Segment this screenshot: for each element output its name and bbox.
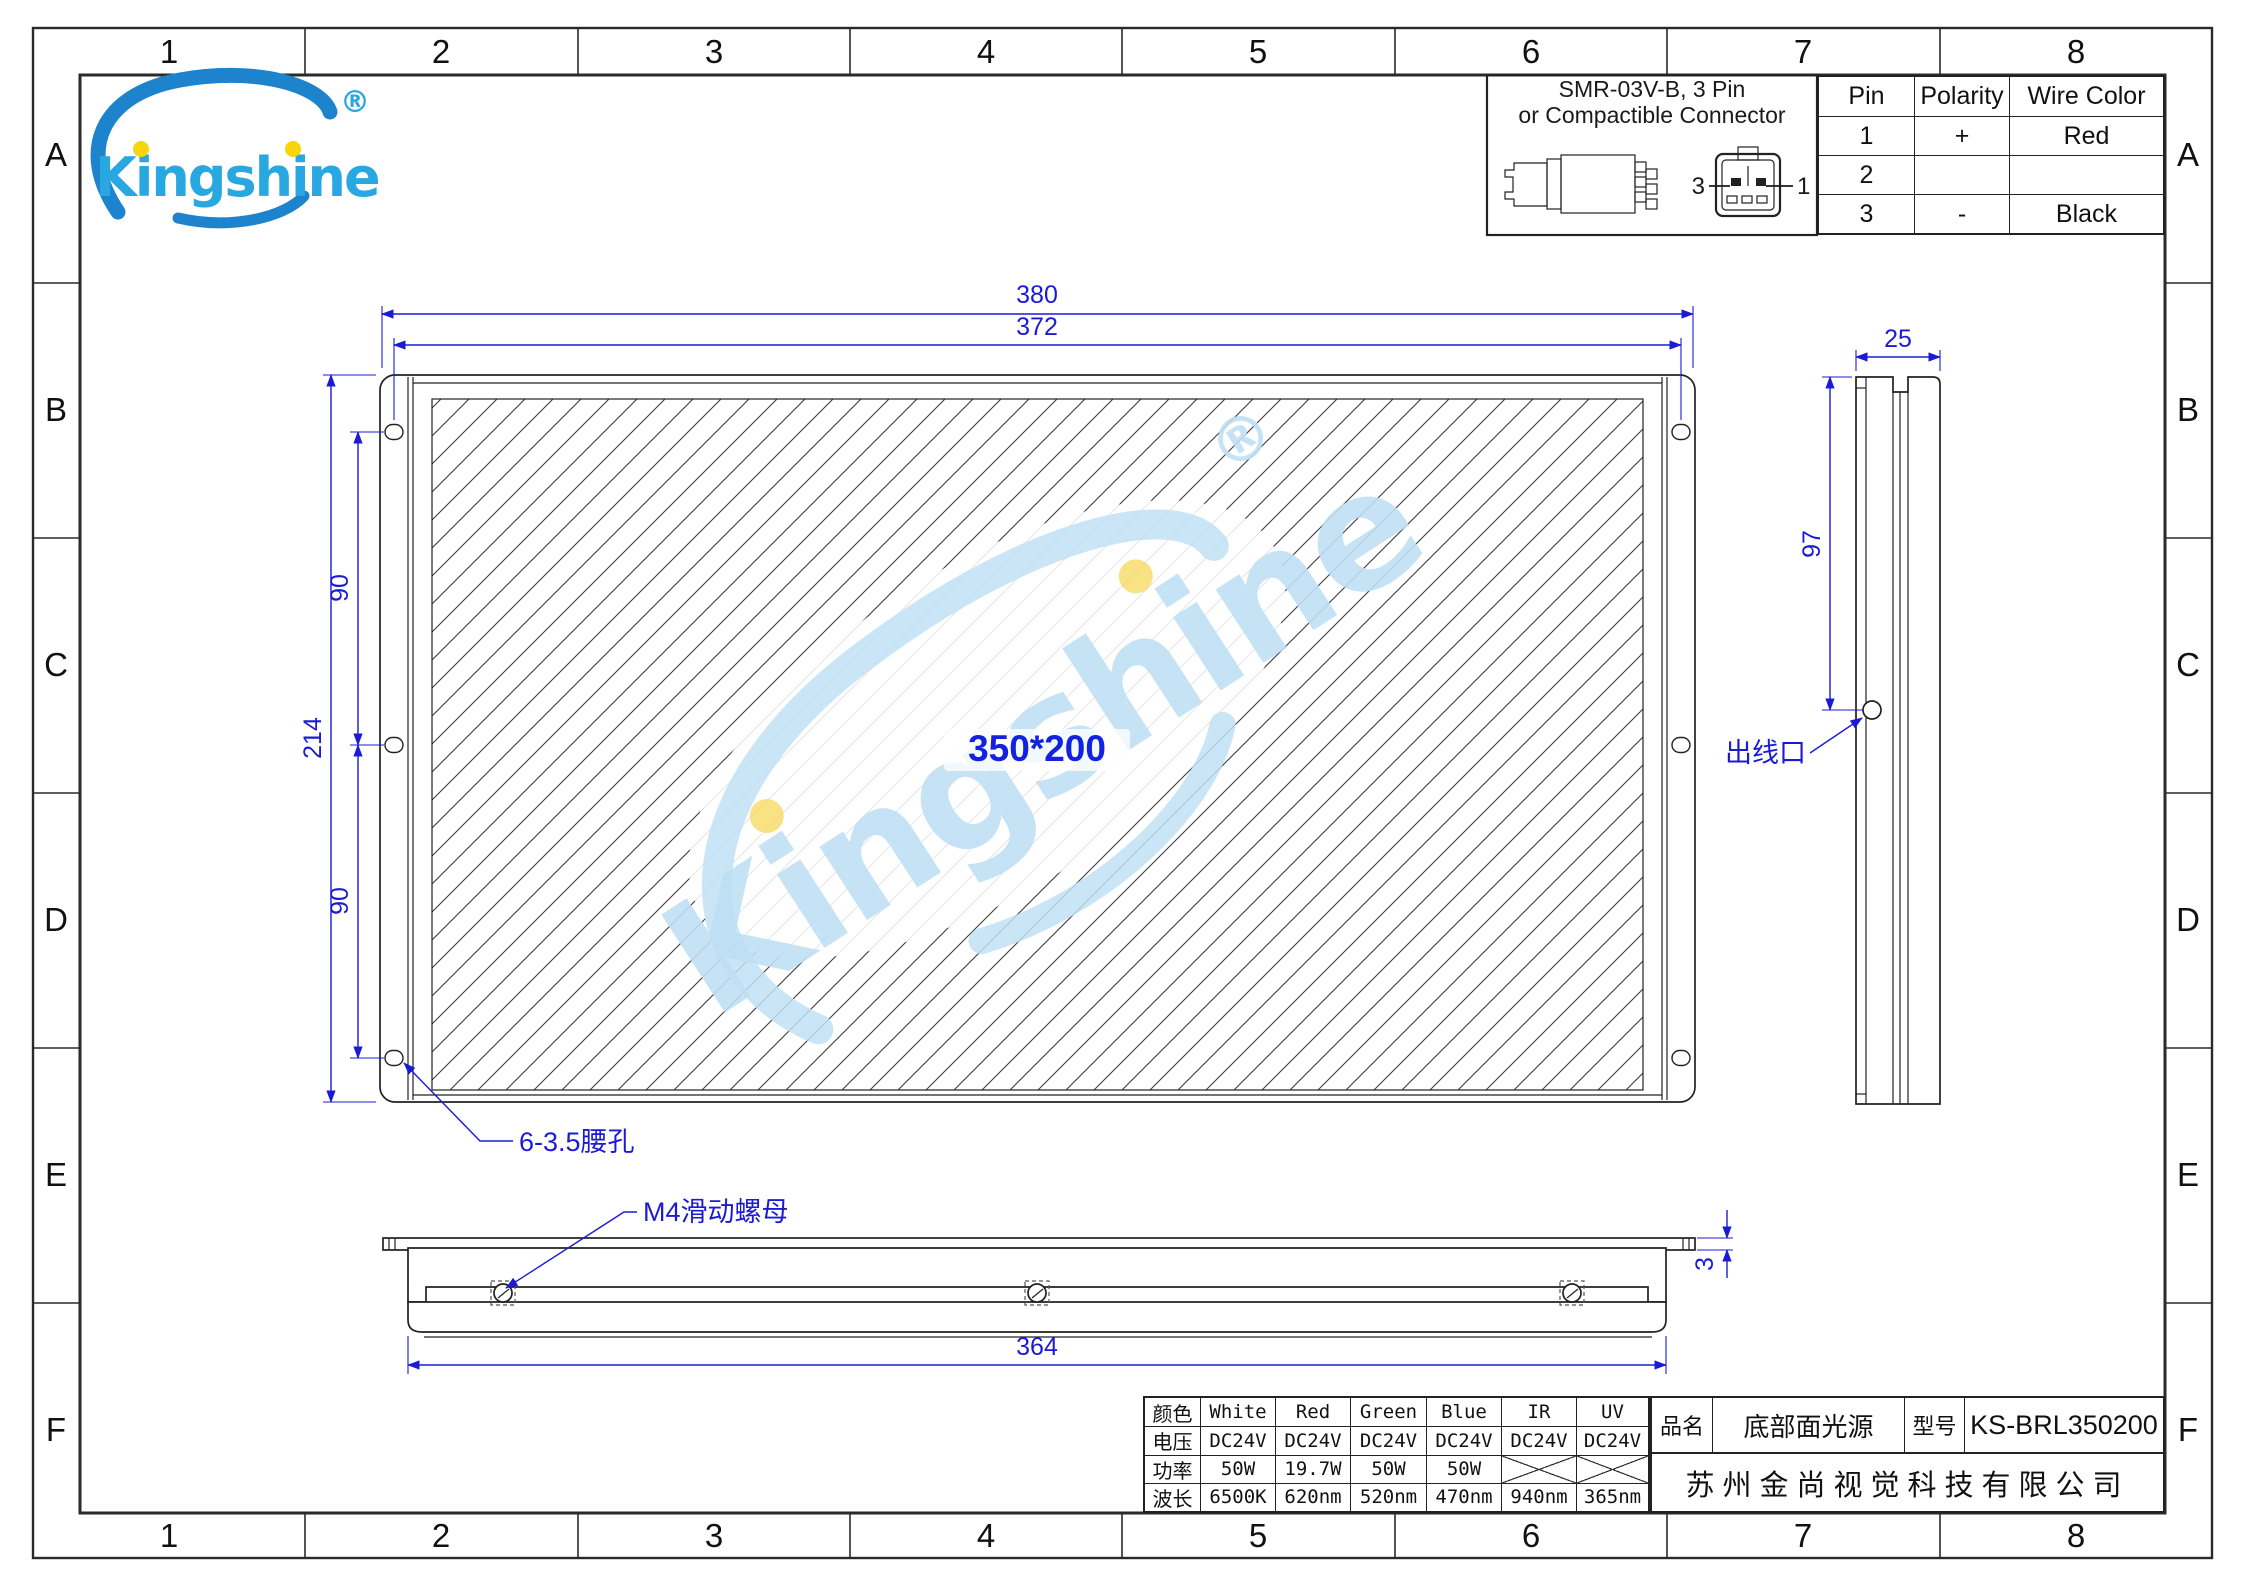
zone-label: 7 <box>1794 33 1812 70</box>
spec-cell: DC24V <box>1501 1426 1576 1454</box>
zone-label: 2 <box>432 33 450 70</box>
dim-depth: 25 <box>1884 325 1912 353</box>
connector-title-line1: SMR-03V-B, 3 Pin <box>1559 76 1746 102</box>
spec-cell: 520nm <box>1350 1483 1426 1511</box>
spec-cell: 50W <box>1200 1455 1275 1483</box>
product-name: 底部面光源 <box>1712 1398 1904 1452</box>
zone-label: 7 <box>1794 1517 1812 1554</box>
zone-label: 4 <box>977 33 995 70</box>
m4-nut <box>1563 1284 1581 1302</box>
dim-hole-span-top: 90 <box>326 574 354 602</box>
pin1-lead-label: 1 <box>1797 173 1810 200</box>
kingshine-logo: Kingshine ® <box>95 75 379 222</box>
logo-dot-icon <box>133 141 149 157</box>
spec-cell: DC24V <box>1576 1426 1648 1454</box>
exit-callout-leader <box>1810 718 1862 753</box>
zone-label: 5 <box>1249 33 1267 70</box>
company-name: 苏州金尚视觉科技有限公司 <box>1652 1452 2163 1511</box>
logo-dot-icon <box>285 141 301 157</box>
model-number: KS-BRL350200 <box>1964 1398 2163 1452</box>
zone-label: 8 <box>2067 1517 2085 1554</box>
zone-label: 4 <box>977 1517 995 1554</box>
pin-table-cell: + <box>1914 116 2009 155</box>
zone-label: C <box>44 646 68 683</box>
zone-label: D <box>2176 901 2200 938</box>
zone-label: 6 <box>1522 1517 1540 1554</box>
spec-cell: 365nm <box>1576 1483 1648 1511</box>
exit-callout-label: 出线口 <box>1725 738 1806 768</box>
wire-exit-hole <box>1863 701 1881 719</box>
slot-hole <box>385 425 403 440</box>
dim-length: 364 <box>1016 1333 1058 1361</box>
zone-label: F <box>2178 1411 2198 1448</box>
dim-width-outer: 380 <box>1016 281 1058 309</box>
spec-cell: DC24V <box>1275 1426 1350 1454</box>
side-profile <box>1856 377 1940 1104</box>
connector-receptacle-drawing <box>1716 147 1780 216</box>
dim-hole-span-bottom: 90 <box>326 887 354 915</box>
spec-cell: Green <box>1350 1398 1426 1426</box>
connector-plug-drawing <box>1505 155 1657 213</box>
zone-label: C <box>2176 646 2200 683</box>
spec-cell: White <box>1200 1398 1275 1426</box>
pin-table-cell: - <box>1914 194 2009 233</box>
zone-label: A <box>45 136 67 173</box>
spec-cell: 620nm <box>1275 1483 1350 1511</box>
zone-label: 1 <box>160 33 178 70</box>
title-block: 品名 底部面光源 型号 KS-BRL350200 苏州金尚视觉科技有限公司 <box>1650 1396 2165 1513</box>
dim-width-holes: 372 <box>1016 313 1058 341</box>
window-size-label: 350*200 <box>968 728 1106 769</box>
spec-cell: 940nm <box>1501 1483 1576 1511</box>
spec-cell: 6500K <box>1200 1483 1275 1511</box>
spec-cell: UV <box>1576 1398 1648 1426</box>
spec-cell: IR <box>1501 1398 1576 1426</box>
pin-table-header: Pin <box>1819 77 1914 116</box>
spec-cell: DC24V <box>1200 1426 1275 1454</box>
pin-table-cell: Black <box>2009 194 2163 233</box>
spec-cell: 470nm <box>1426 1483 1501 1511</box>
spec-row-label: 波长 <box>1145 1483 1200 1511</box>
spec-row-label: 颜色 <box>1145 1398 1200 1426</box>
drawing-canvas: 1 2 3 4 5 6 7 8 1 2 3 4 5 6 7 8 A B C D … <box>0 0 2245 1587</box>
spec-row-label: 电压 <box>1145 1426 1200 1454</box>
connector-detail: SMR-03V-B, 3 Pin or Compactible Connecto… <box>1487 75 1817 235</box>
slot-hole <box>385 1051 403 1066</box>
pin-table-cell: 3 <box>1819 194 1914 233</box>
zone-label: 3 <box>705 33 723 70</box>
spec-cell-crossed <box>1501 1455 1576 1483</box>
zone-label: B <box>45 391 67 428</box>
dim-height: 214 <box>299 717 327 759</box>
engineering-drawing-sheet: 1 2 3 4 5 6 7 8 1 2 3 4 5 6 7 8 A B C D … <box>0 0 2245 1587</box>
bottom-view: 364 3 M4滑动螺母 <box>383 1197 1733 1374</box>
zone-label: 3 <box>705 1517 723 1554</box>
registered-mark-icon: ® <box>340 85 370 120</box>
spec-row-label: 功率 <box>1145 1455 1200 1483</box>
zone-row-labels-left: A B C D E F <box>44 136 68 1448</box>
spec-cell: DC24V <box>1426 1426 1501 1454</box>
spec-cell: 50W <box>1350 1455 1426 1483</box>
slot-hole <box>1672 1051 1690 1066</box>
side-view: 25 97 出线口 <box>1725 325 1940 1104</box>
pin3-lead-label: 3 <box>1692 173 1705 200</box>
front-view: Kingshine ® 350*200 380 372 <box>299 281 1695 1157</box>
spec-cell: Blue <box>1426 1398 1501 1426</box>
spec-table: 颜色 White Red Green Blue IR UV 电压 DC24V D… <box>1143 1396 1650 1513</box>
slot-hole <box>1672 738 1690 753</box>
zone-label: 5 <box>1249 1517 1267 1554</box>
pin-table-cell <box>2009 155 2163 194</box>
spec-cell: DC24V <box>1350 1426 1426 1454</box>
slot-callout-label: 6-3.5腰孔 <box>519 1127 635 1157</box>
pin-table-cell: 2 <box>1819 155 1914 194</box>
pin-table-cell <box>1914 155 2009 194</box>
spec-cell: Red <box>1275 1398 1350 1426</box>
zone-label: B <box>2177 391 2199 428</box>
zone-label: F <box>46 1411 66 1448</box>
zone-label: 2 <box>432 1517 450 1554</box>
model-label: 型号 <box>1904 1398 1964 1452</box>
m4-nut <box>1028 1284 1046 1302</box>
zone-label: 6 <box>1522 33 1540 70</box>
spec-cell: 19.7W <box>1275 1455 1350 1483</box>
zone-label: A <box>2177 136 2199 173</box>
spec-cell-crossed <box>1576 1455 1648 1483</box>
slot-hole <box>1672 425 1690 440</box>
pin-table-cell: 1 <box>1819 116 1914 155</box>
dim-exit-height: 97 <box>1798 530 1826 558</box>
connector-title-line2: or Compactible Connector <box>1518 102 1786 128</box>
pin-table: Pin Polarity Wire Color 1 + Red 2 3 - Bl… <box>1817 75 2165 235</box>
zone-row-labels-right: A B C D E F <box>2176 136 2200 1448</box>
rail-base <box>408 1302 1666 1332</box>
nut-callout-label: M4滑动螺母 <box>643 1197 789 1227</box>
spec-cell: 50W <box>1426 1455 1501 1483</box>
pin-table-header: Wire Color <box>2009 77 2163 116</box>
slot-hole <box>385 738 403 753</box>
zone-label: E <box>45 1156 67 1193</box>
pin-table-cell: Red <box>2009 116 2163 155</box>
zone-label: E <box>2177 1156 2199 1193</box>
zone-label: 8 <box>2067 33 2085 70</box>
product-name-label: 品名 <box>1652 1398 1712 1452</box>
dim-plate-thickness: 3 <box>1691 1257 1719 1271</box>
pin-table-header: Polarity <box>1914 77 2009 116</box>
zone-label: 1 <box>160 1517 178 1554</box>
zone-label: D <box>44 901 68 938</box>
